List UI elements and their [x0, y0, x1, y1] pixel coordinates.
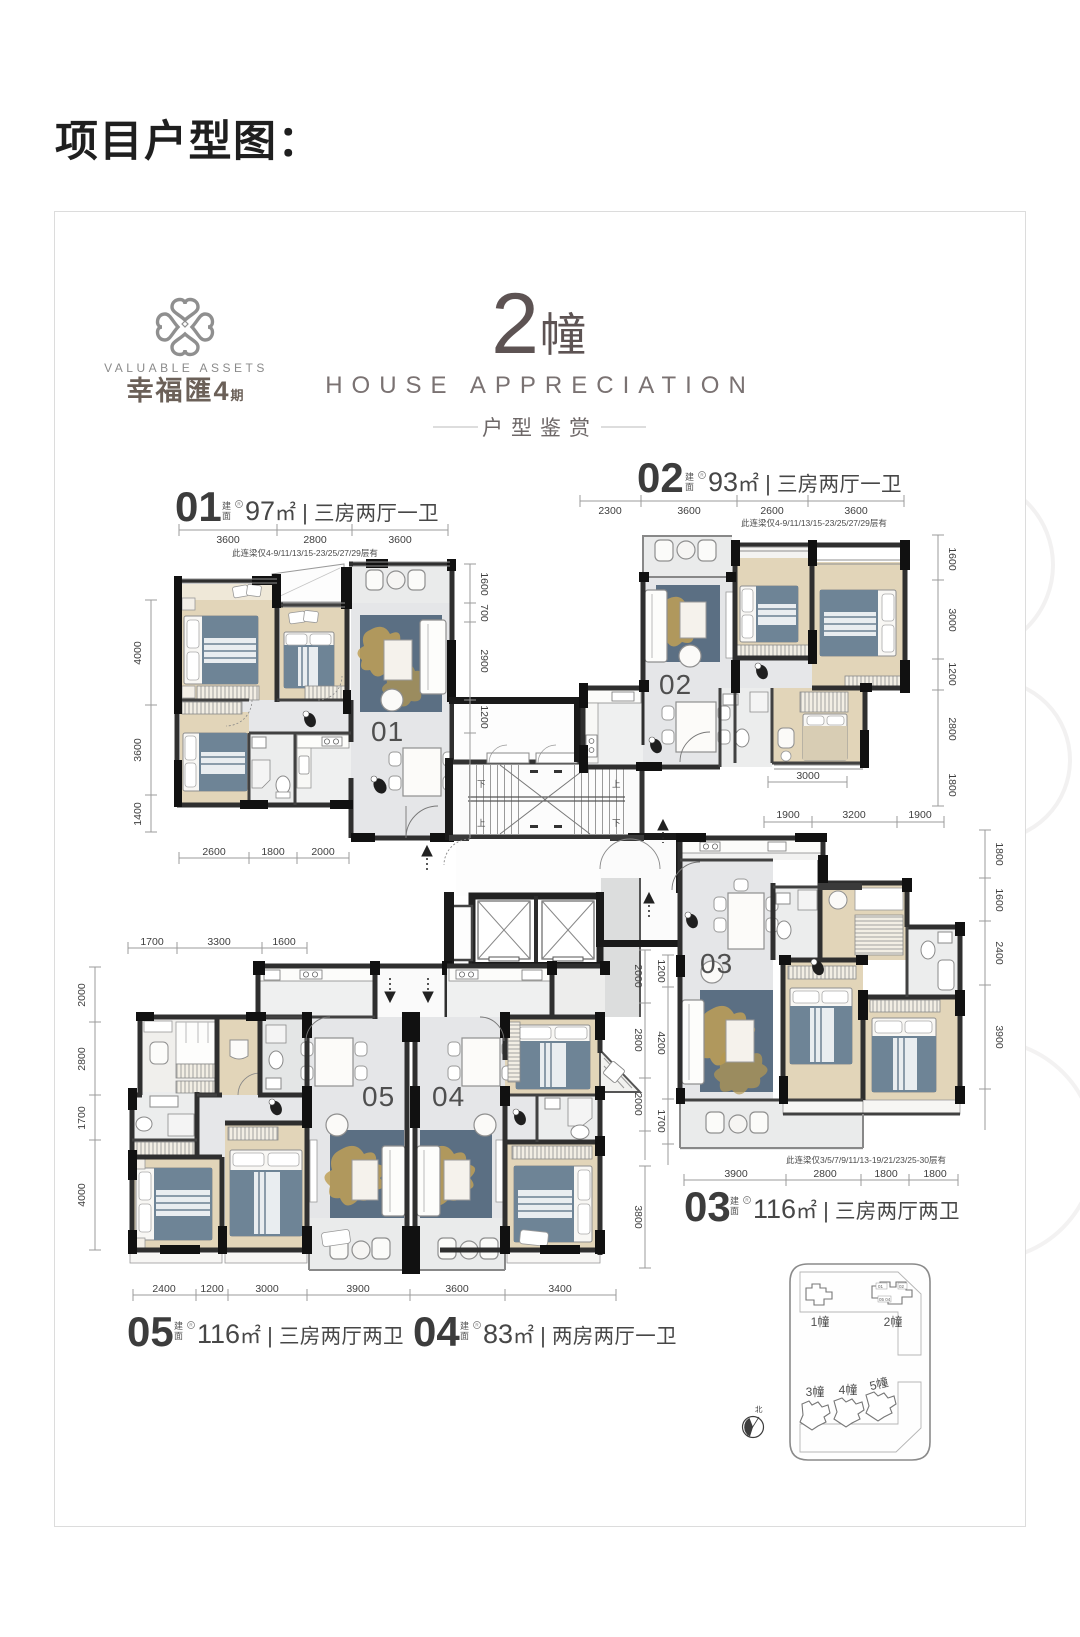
svg-text:1600: 1600 — [946, 547, 958, 571]
svg-text:2000: 2000 — [632, 964, 644, 988]
svg-text:1900: 1900 — [908, 809, 932, 821]
svg-text:3600: 3600 — [445, 1283, 469, 1295]
svg-text:05 04: 05 04 — [879, 1297, 891, 1302]
svg-text:3600: 3600 — [388, 534, 412, 546]
svg-text:05: 05 — [362, 1081, 395, 1112]
svg-text:3000: 3000 — [255, 1283, 279, 1295]
svg-text:建: 建 — [222, 500, 231, 511]
svg-text:下: 下 — [477, 779, 486, 789]
svg-text:3800: 3800 — [632, 1205, 644, 1229]
svg-text:2800: 2800 — [76, 1047, 88, 1071]
svg-text:1800: 1800 — [261, 846, 285, 858]
svg-text:4200: 4200 — [655, 1031, 667, 1055]
svg-text:2: 2 — [491, 276, 539, 372]
svg-text:2800: 2800 — [632, 1028, 644, 1052]
svg-text:1700: 1700 — [76, 1106, 88, 1130]
svg-text:1400: 1400 — [132, 802, 144, 826]
svg-text:2000: 2000 — [632, 1092, 644, 1116]
svg-text:2幢: 2幢 — [884, 1314, 903, 1329]
svg-text:面: 面 — [174, 1331, 183, 1341]
svg-text:2800: 2800 — [813, 1168, 837, 1180]
svg-text:建: 建 — [730, 1195, 739, 1206]
svg-text:4幢: 4幢 — [839, 1382, 858, 1397]
svg-text:上: 上 — [612, 779, 621, 789]
svg-text:03: 03 — [700, 948, 733, 979]
svg-text:2800: 2800 — [946, 717, 958, 741]
svg-text:700: 700 — [478, 604, 490, 622]
svg-text:2600: 2600 — [760, 505, 784, 517]
svg-text:1200: 1200 — [946, 662, 958, 686]
svg-text:面: 面 — [460, 1331, 469, 1341]
svg-text:2000: 2000 — [76, 983, 88, 1007]
svg-text:上: 上 — [477, 818, 486, 828]
svg-text:3600: 3600 — [677, 505, 701, 517]
svg-text:1600: 1600 — [272, 936, 296, 948]
svg-text:02: 02 — [899, 1284, 905, 1289]
svg-text:01: 01 — [371, 716, 404, 747]
svg-text:户型鉴赏: 户型鉴赏 — [482, 417, 598, 440]
svg-text:建: 建 — [174, 1320, 183, 1331]
svg-text:3400: 3400 — [548, 1283, 572, 1295]
svg-text:2400: 2400 — [993, 941, 1005, 965]
svg-text:建: 建 — [460, 1320, 469, 1331]
svg-text:3幢: 3幢 — [806, 1384, 825, 1399]
svg-text:面: 面 — [685, 482, 694, 492]
svg-text:1600: 1600 — [993, 888, 1005, 912]
svg-text:2300: 2300 — [598, 505, 622, 517]
svg-text:01: 01 — [878, 1284, 884, 1289]
svg-text:3300: 3300 — [207, 936, 231, 948]
svg-text:1幢: 1幢 — [811, 1314, 830, 1329]
svg-text:1200: 1200 — [655, 959, 667, 983]
svg-text:2600: 2600 — [202, 846, 226, 858]
svg-text:3600: 3600 — [132, 738, 144, 762]
svg-text:2000: 2000 — [311, 846, 335, 858]
svg-text:此连梁仅4-9/11/13/15-23/25/27/29层有: 此连梁仅4-9/11/13/15-23/25/27/29层有 — [741, 518, 887, 528]
svg-text:3900: 3900 — [724, 1168, 748, 1180]
svg-text:3600: 3600 — [216, 534, 240, 546]
svg-text:此连梁仅3/5/7/9/11/13-19/21/23/25-: 此连梁仅3/5/7/9/11/13-19/21/23/25-30层有 — [786, 1155, 946, 1165]
svg-text:3900: 3900 — [346, 1283, 370, 1295]
svg-text:1700: 1700 — [140, 936, 164, 948]
svg-text:项目户型图：: 项目户型图： — [55, 118, 322, 166]
svg-text:2800: 2800 — [303, 534, 327, 546]
svg-text:04: 04 — [432, 1081, 465, 1112]
svg-text:1800: 1800 — [923, 1168, 947, 1180]
svg-text:1600: 1600 — [478, 572, 490, 596]
svg-text:05: 05 — [127, 1308, 174, 1355]
svg-text:建: 建 — [685, 471, 694, 482]
svg-text:1200: 1200 — [200, 1283, 224, 1295]
svg-text:VALUABLE ASSETS: VALUABLE ASSETS — [104, 361, 268, 375]
svg-text:4000: 4000 — [132, 641, 144, 665]
svg-text:幸福匯4期: 幸福匯4期 — [126, 376, 245, 406]
svg-text:面: 面 — [222, 511, 231, 521]
svg-text:2400: 2400 — [152, 1283, 176, 1295]
svg-text:03: 03 — [684, 1183, 731, 1230]
svg-text:3900: 3900 — [993, 1025, 1005, 1049]
svg-text:01: 01 — [175, 483, 222, 530]
svg-text:幢: 幢 — [540, 309, 586, 361]
svg-text:HOUSE APPRECIATION: HOUSE APPRECIATION — [325, 372, 755, 399]
svg-text:北: 北 — [755, 1405, 763, 1414]
svg-text:1800: 1800 — [993, 842, 1005, 866]
svg-text:3600: 3600 — [844, 505, 868, 517]
svg-text:1900: 1900 — [776, 809, 800, 821]
svg-text:2900: 2900 — [478, 649, 490, 673]
svg-text:1800: 1800 — [946, 773, 958, 797]
svg-text:4000: 4000 — [76, 1183, 88, 1207]
svg-text:1200: 1200 — [478, 705, 490, 729]
svg-text:3000: 3000 — [946, 608, 958, 632]
svg-text:1700: 1700 — [655, 1109, 667, 1133]
svg-text:02: 02 — [637, 454, 684, 501]
svg-text:下: 下 — [612, 818, 621, 828]
svg-text:04: 04 — [413, 1308, 460, 1355]
svg-text:02: 02 — [659, 669, 692, 700]
svg-text:此连梁仅4-9/11/13/15-23/25/27/29层有: 此连梁仅4-9/11/13/15-23/25/27/29层有 — [232, 548, 378, 558]
svg-text:1800: 1800 — [874, 1168, 898, 1180]
svg-text:面: 面 — [730, 1206, 739, 1216]
svg-text:3200: 3200 — [842, 809, 866, 821]
svg-text:3000: 3000 — [796, 770, 820, 782]
